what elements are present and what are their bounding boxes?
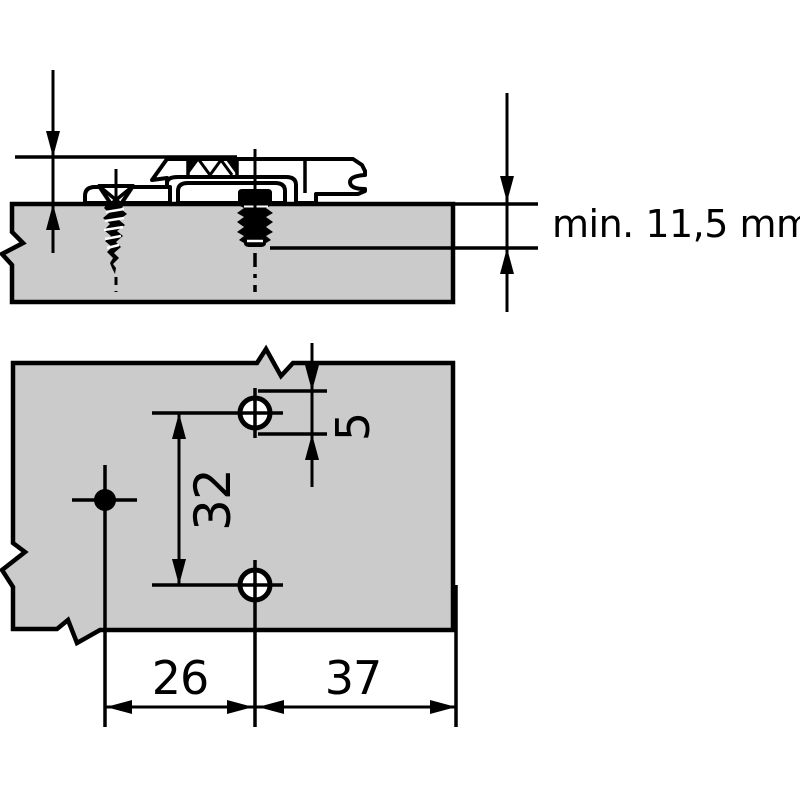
min-thickness-label: min. 11,5 mm xyxy=(552,202,800,246)
arrowhead-right xyxy=(430,700,456,714)
hole-pitch-label: 32 xyxy=(184,469,242,531)
arrowhead-down xyxy=(46,131,60,157)
arrowhead-right xyxy=(227,700,253,714)
arrowhead-left xyxy=(258,700,284,714)
plate-height-dimension xyxy=(46,70,60,253)
bottom-dimensions: 26 37 xyxy=(106,651,456,714)
plan-view: 5 32 26 37 xyxy=(2,343,456,727)
holes-to-edge-label: 37 xyxy=(325,651,382,705)
mounting-plate-drawing: min. 11,5 mm 5 xyxy=(0,0,800,800)
arrowhead-left xyxy=(106,700,132,714)
dowel-to-holes-label: 26 xyxy=(152,651,209,705)
slot-dimension-label: 5 xyxy=(326,413,380,441)
min-thickness-dimension: min. 11,5 mm xyxy=(500,93,800,312)
arrowhead-down xyxy=(500,176,514,202)
section-view: min. 11,5 mm xyxy=(2,70,800,312)
arrowhead-up xyxy=(500,248,514,274)
technical-drawing-page: min. 11,5 mm 5 xyxy=(0,0,800,800)
panel-section xyxy=(2,204,453,302)
